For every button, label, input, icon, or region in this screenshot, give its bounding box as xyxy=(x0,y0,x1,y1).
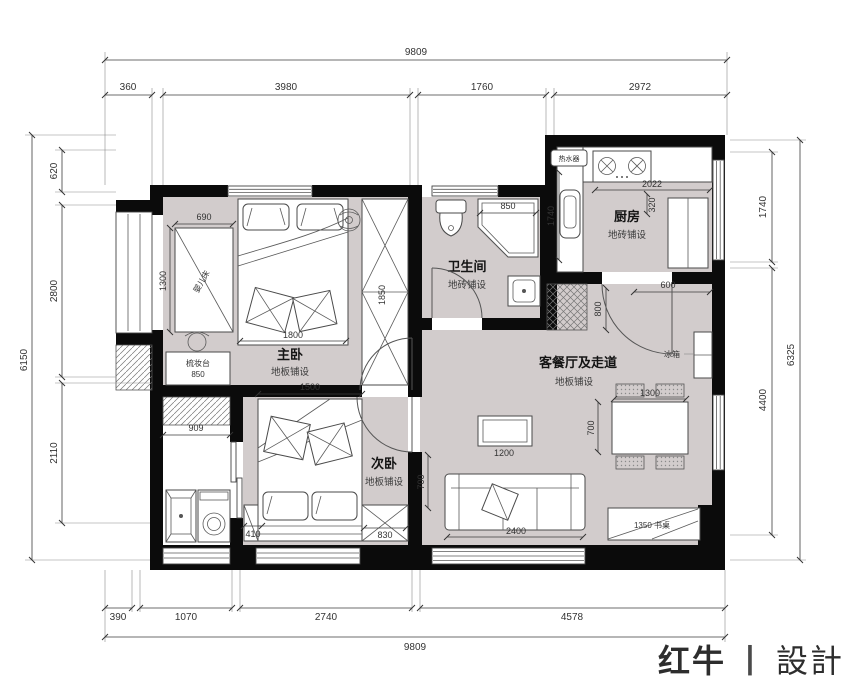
right-dim-a: 1740 xyxy=(758,195,769,218)
bath-room-name: 卫生间 xyxy=(447,259,486,274)
window-second-bottom xyxy=(256,548,360,564)
second-bed-dim: 1500 xyxy=(300,382,320,392)
desk-label: 1350 书桌 xyxy=(634,520,670,530)
window-balcony-bottom xyxy=(163,548,230,564)
balcony: 909 xyxy=(163,423,230,542)
logo-divider: 丨 xyxy=(734,643,768,679)
right-overall-dim: 6325 xyxy=(786,343,797,366)
kitchen-counter-h-dim: 1740 xyxy=(546,206,556,226)
studio-logo: 红牛丨設計 xyxy=(658,636,844,682)
sofa-dim: 2400 xyxy=(506,526,526,536)
single-bed-icon xyxy=(258,399,362,541)
left-dim-b: 2800 xyxy=(49,279,60,302)
second-room-name: 次卧 xyxy=(371,456,397,471)
kitchen-counter-w-dim: 2022 xyxy=(642,179,662,189)
second-door-dim: 700 xyxy=(416,474,426,489)
stove-icon xyxy=(593,151,651,182)
top-dim-c: 1760 xyxy=(471,82,494,93)
sofa-icon xyxy=(445,474,585,530)
water-heater-label: 热水器 xyxy=(559,154,580,163)
kitchen-depth-dim: 320 xyxy=(647,197,657,212)
low-dresser-dim: 830 xyxy=(377,530,392,540)
crib-icon: 婴儿床 xyxy=(175,228,233,332)
top-overall-dim: 9809 xyxy=(405,47,428,58)
hall-width-dim: 800 xyxy=(593,301,603,316)
dining-chair-icon xyxy=(616,456,644,469)
dining-chair-icon xyxy=(656,384,684,397)
washing-machine-icon xyxy=(198,490,230,542)
bottom-dim-b: 1070 xyxy=(175,612,198,623)
balcony-sliding-door xyxy=(231,442,242,518)
coffee-table-dim: 1200 xyxy=(494,448,514,458)
top-dim-a: 360 xyxy=(120,82,137,93)
bottom-dim-d: 4578 xyxy=(561,612,584,623)
top-dim-d: 2972 xyxy=(629,82,652,93)
entry-shaft-hatch xyxy=(547,284,587,330)
window-living-right xyxy=(713,395,724,470)
crib-height-dim: 1300 xyxy=(158,271,168,291)
bottom-dim-a: 390 xyxy=(110,612,127,623)
top-dim-b: 3980 xyxy=(275,82,298,93)
master-floor-note: 地板铺设 xyxy=(271,366,310,378)
left-dim-c: 2110 xyxy=(49,442,60,464)
fridge-icon xyxy=(668,198,708,268)
bay-window-master xyxy=(116,212,152,333)
balcony-cabinet-hatch xyxy=(163,397,230,425)
dining-chair-icon xyxy=(656,456,684,469)
shower-dim: 850 xyxy=(500,201,515,211)
bath-sink-icon xyxy=(508,276,540,306)
kitchen-sink-icon xyxy=(560,190,580,238)
left-dim-a: 620 xyxy=(49,162,60,179)
crib-width-dim: 690 xyxy=(196,212,211,222)
living-room-name: 客餐厅及走道 xyxy=(539,355,617,370)
window-living-bottom xyxy=(432,548,585,564)
dimensions-right: 6325 1740 4400 xyxy=(730,140,806,560)
left-overall-dim: 6150 xyxy=(19,348,30,371)
nightstand-dim: 410 xyxy=(245,529,260,539)
master-bed-dim: 1800 xyxy=(283,330,303,340)
logo-brand: 红牛 xyxy=(658,643,726,679)
dining-width-dim: 1300 xyxy=(640,388,660,398)
floor-plan-canvas: 婴儿床 1850 xyxy=(0,0,860,688)
dresser-size-label: 850 xyxy=(191,370,205,379)
second-floor-note: 地板铺设 xyxy=(365,476,404,488)
dresser-label: 梳妆台 xyxy=(186,358,210,368)
utility-sink-icon xyxy=(166,490,196,542)
water-heater-icon: 热水器 xyxy=(551,150,587,166)
window-master-top xyxy=(228,186,312,196)
wardrobe-dim: 1850 xyxy=(377,285,387,305)
bottom-overall-dim: 9809 xyxy=(404,642,427,653)
master-room-name: 主卧 xyxy=(277,347,303,362)
wardrobe-icon: 1850 xyxy=(362,199,408,385)
dimensions-bottom: 390 1070 2740 4578 9809 xyxy=(105,570,725,653)
living-floor-note: 地板铺设 xyxy=(555,376,594,388)
bottom-dim-c: 2740 xyxy=(315,612,338,623)
window-bath-top xyxy=(432,186,498,196)
dining-gap-dim: 700 xyxy=(586,420,596,435)
right-dim-b: 4400 xyxy=(758,388,769,411)
logo-name: 設計 xyxy=(776,643,844,679)
kitchen-floor-note: 地砖铺设 xyxy=(608,229,647,241)
desk-icon: 1350 书桌 xyxy=(608,508,700,540)
window-kitchen-right xyxy=(713,160,724,260)
kitchen-gap-dim: 600 xyxy=(660,280,675,290)
coffee-table-icon xyxy=(478,416,532,446)
double-bed-icon xyxy=(238,199,348,345)
kitchen-room-name: 厨房 xyxy=(614,209,640,224)
dining-table xyxy=(612,402,688,454)
bath-floor-note: 地砖铺设 xyxy=(448,279,487,291)
balcony-dim: 909 xyxy=(188,423,203,433)
